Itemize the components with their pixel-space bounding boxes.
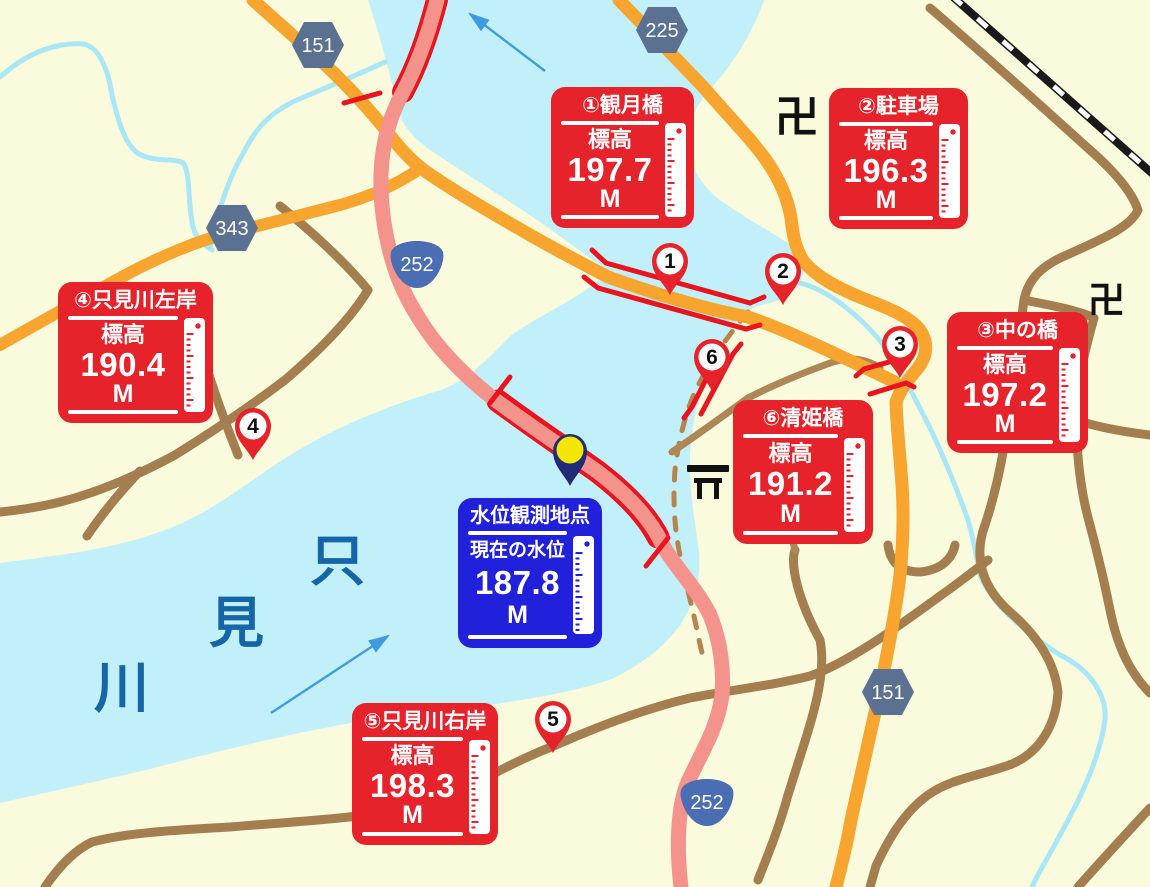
map-pin-1[interactable]: 1 <box>650 241 690 297</box>
info-card-kangetsu-bridge: ①観月橋 標高 197.7 M <box>551 87 694 228</box>
svg-text:151: 151 <box>301 35 334 57</box>
card-unit: M <box>402 804 423 828</box>
card-title: ⑥清姫橋 <box>741 406 865 432</box>
card-value: 198.3 <box>370 769 455 802</box>
svg-text:252: 252 <box>400 254 433 276</box>
info-card-parking: ②駐車場 標高 196.3 M <box>829 88 968 229</box>
river-name-char: 只 <box>310 534 365 589</box>
route-badge-151-bottom: 151 <box>860 667 916 722</box>
svg-text:1: 1 <box>664 250 676 273</box>
card-unit: M <box>113 383 134 407</box>
card-value: 190.4 <box>80 348 165 381</box>
svg-text:151: 151 <box>871 682 904 704</box>
rule <box>68 410 178 414</box>
map-pin-6[interactable]: 6 <box>692 337 732 393</box>
rule <box>362 737 463 741</box>
gauge-ruler-icon <box>1059 348 1080 442</box>
card-unit: M <box>507 604 528 628</box>
card-value: 196.3 <box>843 154 928 187</box>
card-value: 187.8 <box>475 566 560 599</box>
svg-text:225: 225 <box>645 20 678 42</box>
route-badge-343: 343 <box>204 203 260 258</box>
map-pin-5[interactable]: 5 <box>533 699 573 755</box>
card-title: ③中の橋 <box>955 318 1080 344</box>
card-unit: M <box>995 413 1016 437</box>
observation-point-pin[interactable] <box>550 431 590 487</box>
card-value: 197.7 <box>567 153 652 186</box>
info-card-kiyohime-bridge: ⑥清姫橋 標高 191.2 M <box>733 400 873 544</box>
gauge-ruler-icon <box>573 536 594 634</box>
temple-icon: 卍 <box>1088 282 1125 319</box>
rule <box>68 316 178 320</box>
rule <box>561 215 659 219</box>
card-label: 標高 <box>588 128 632 151</box>
card-title: ①観月橋 <box>559 93 686 119</box>
route-badge-252-top: 252 <box>388 238 446 295</box>
card-label: 標高 <box>101 323 145 346</box>
rule <box>362 832 463 836</box>
card-value: 191.2 <box>748 467 833 500</box>
map-stage[interactable]: 卍 卍 只 見 川 151 225 343 252 252 151 1 2 3 <box>0 0 1150 887</box>
gauge-ruler-icon <box>939 124 960 218</box>
route-badge-252-bottom: 252 <box>678 776 736 833</box>
card-label: 標高 <box>983 353 1027 376</box>
card-label: 標高 <box>768 442 812 465</box>
card-title: ②駐車場 <box>837 94 960 120</box>
card-title: 水位観測地点 <box>466 504 594 529</box>
card-title: ④只見川左岸 <box>66 288 205 314</box>
map-pin-4[interactable]: 4 <box>233 406 273 462</box>
river-name-char: 川 <box>94 661 149 716</box>
card-title: ⑤只見川右岸 <box>360 709 490 735</box>
gauge-ruler-icon <box>469 740 490 834</box>
route-badge-151-top: 151 <box>290 20 346 75</box>
gauge-ruler-icon <box>184 318 205 412</box>
svg-text:5: 5 <box>547 708 559 731</box>
card-label: 標高 <box>390 744 434 767</box>
route-badge-225: 225 <box>634 5 690 60</box>
card-unit: M <box>600 188 621 212</box>
info-card-right-bank: ⑤只見川右岸 標高 198.3 M <box>352 703 498 845</box>
info-card-nakano-bridge: ③中の橋 標高 197.2 M <box>947 312 1088 453</box>
svg-text:343: 343 <box>215 218 248 240</box>
svg-text:3: 3 <box>894 333 906 356</box>
gauge-ruler-icon <box>844 438 865 532</box>
rule <box>839 216 933 220</box>
card-label: 現在の水位 <box>470 541 565 561</box>
svg-text:252: 252 <box>690 792 723 814</box>
rule <box>468 531 567 535</box>
gauge-ruler-icon <box>665 123 686 217</box>
map-pin-2[interactable]: 2 <box>763 251 803 307</box>
temple-icon: 卍 <box>775 96 819 140</box>
rule <box>839 122 933 126</box>
svg-text:2: 2 <box>777 260 789 283</box>
svg-text:6: 6 <box>706 346 718 369</box>
water-level-card: 水位観測地点 現在の水位 187.8 M <box>458 498 602 648</box>
card-unit: M <box>780 503 801 527</box>
rule <box>468 635 567 639</box>
info-card-left-bank: ④只見川左岸 標高 190.4 M <box>58 282 213 423</box>
card-label: 標高 <box>864 129 908 152</box>
map-pin-3[interactable]: 3 <box>880 324 920 380</box>
river-name-char: 見 <box>209 596 264 651</box>
rule <box>561 121 659 125</box>
card-unit: M <box>876 189 897 213</box>
rule <box>957 346 1053 350</box>
svg-text:4: 4 <box>247 415 259 438</box>
rule <box>957 440 1053 444</box>
rule <box>743 434 838 438</box>
rule <box>743 531 838 535</box>
card-value: 197.2 <box>962 378 1047 411</box>
